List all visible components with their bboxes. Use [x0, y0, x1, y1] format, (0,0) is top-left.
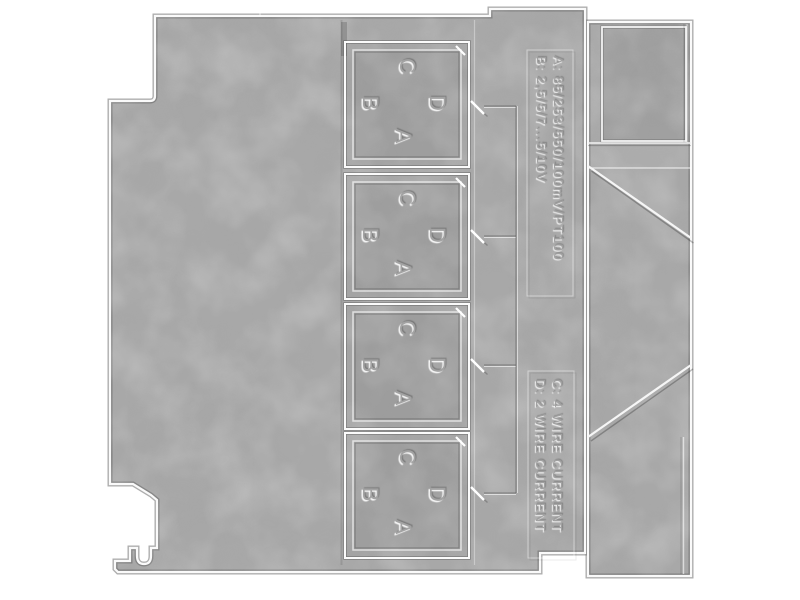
window1-letter-bottom: A	[391, 124, 415, 148]
window1-letter-top: C	[395, 54, 419, 78]
window4-letter-left: B	[358, 482, 382, 506]
window3-letter-bottom: A	[391, 386, 415, 410]
spec-line-c: C: 4 WIRE CURRENT	[549, 379, 566, 561]
window3-letter-right: D	[425, 353, 449, 377]
window2-letter-bottom: A	[391, 256, 415, 280]
spec-line-b: B: 2,5/5/7...5/10V	[533, 56, 550, 301]
window1-letter-left: B	[358, 91, 382, 115]
spec-line-a: A: 85/253/550/100mV/PT100	[550, 56, 567, 301]
spec-label-top: A: 85/253/550/100mV/PT100 B: 2,5/5/7...5…	[531, 56, 567, 301]
window2-letter-left: B	[358, 223, 382, 247]
spec-label-bottom: C: 4 WIRE CURRENT D: 2 WIRE CURRENT	[530, 379, 566, 561]
window4-letter-bottom: A	[391, 515, 415, 539]
panel-render-stage: A: 85/253/550/100mV/PT100 B: 2,5/5/7...5…	[0, 0, 800, 600]
window1-letter-right: D	[425, 91, 449, 115]
window2-letter-top: C	[395, 186, 419, 210]
spec-line-d: D: 2 WIRE CURRENT	[532, 379, 549, 561]
window4-letter-right: D	[425, 482, 449, 506]
window4-letter-top: C	[395, 445, 419, 469]
window3-letter-left: B	[358, 353, 382, 377]
die-cast-panel-graphic	[0, 0, 800, 600]
window2-letter-right: D	[425, 223, 449, 247]
window3-letter-top: C	[395, 316, 419, 340]
